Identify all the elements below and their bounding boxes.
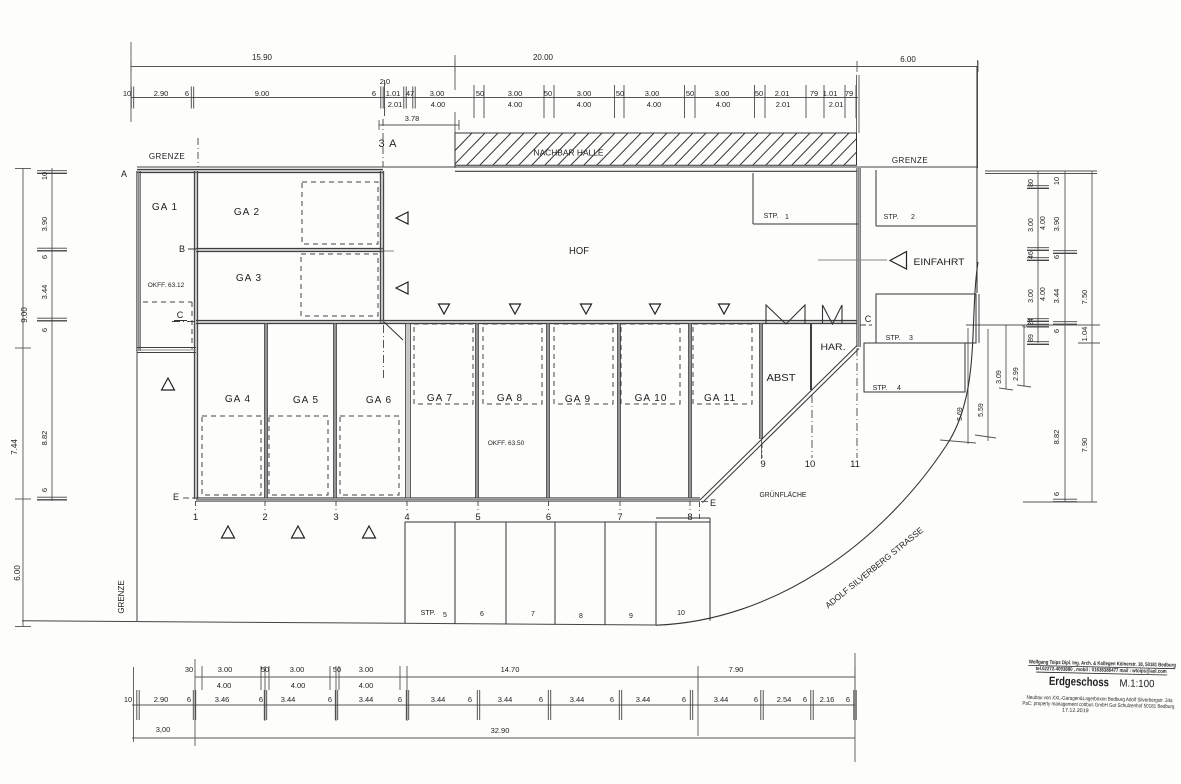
svg-text:10: 10 (40, 172, 49, 180)
svg-text:4.00: 4.00 (431, 100, 446, 109)
svg-text:9: 9 (760, 459, 765, 470)
svg-text:GRÜNFLÄCHE: GRÜNFLÄCHE (760, 490, 807, 499)
svg-text:3.44: 3.44 (1052, 289, 1061, 304)
svg-text:GA 6: GA 6 (366, 395, 392, 406)
svg-text:GA 11: GA 11 (704, 393, 736, 404)
svg-text:2.90: 2.90 (154, 89, 169, 98)
svg-text:79: 79 (810, 89, 818, 98)
svg-text:GA 5: GA 5 (293, 395, 319, 406)
svg-text:4.00: 4.00 (577, 100, 592, 109)
svg-text:3.44: 3.44 (714, 695, 729, 704)
svg-text:47: 47 (406, 89, 414, 98)
svg-text:3.09: 3.09 (996, 370, 1003, 384)
svg-text:3: 3 (333, 512, 338, 523)
svg-text:2.01: 2.01 (829, 100, 844, 109)
svg-text:6: 6 (185, 89, 189, 98)
svg-text:6: 6 (40, 488, 49, 492)
svg-text:50: 50 (616, 89, 624, 98)
svg-text:3.00: 3.00 (508, 89, 523, 98)
svg-text:NACHBAR HALLE: NACHBAR HALLE (534, 148, 604, 157)
svg-text:32.90: 32.90 (491, 726, 510, 735)
svg-text:50: 50 (755, 89, 763, 98)
svg-text:50: 50 (333, 665, 341, 674)
svg-text:10: 10 (124, 695, 132, 704)
svg-text:6: 6 (259, 695, 263, 704)
svg-text:6: 6 (1052, 492, 1061, 496)
svg-text:GA 4: GA 4 (225, 394, 251, 405)
svg-text:6: 6 (1052, 255, 1061, 259)
svg-text:C: C (177, 310, 184, 320)
svg-text:6: 6 (40, 328, 49, 332)
svg-text:6: 6 (328, 695, 332, 704)
svg-text:E: E (710, 498, 716, 508)
svg-text:50: 50 (544, 89, 552, 98)
svg-text:C: C (865, 314, 872, 324)
svg-text:14.70: 14.70 (501, 665, 520, 674)
svg-text:7.50: 7.50 (1080, 290, 1089, 305)
svg-text:6: 6 (610, 695, 614, 704)
svg-text:3.44: 3.44 (498, 695, 513, 704)
svg-text:10: 10 (805, 459, 816, 470)
svg-text:6: 6 (187, 695, 191, 704)
svg-text:3.00: 3.00 (290, 665, 305, 674)
svg-text:M.1:100: M.1:100 (1119, 677, 1154, 690)
svg-text:3 A: 3 A (379, 138, 398, 150)
svg-text:4: 4 (404, 512, 409, 523)
svg-text:Erdgeschoss: Erdgeschoss (1049, 674, 1110, 689)
svg-text:2.90: 2.90 (154, 695, 169, 704)
svg-text:2: 2 (262, 512, 267, 523)
svg-text:6: 6 (480, 611, 484, 618)
svg-text:HOF: HOF (569, 246, 589, 257)
svg-text:79: 79 (845, 89, 853, 98)
svg-text:3.90: 3.90 (40, 217, 49, 232)
svg-text:6: 6 (546, 512, 551, 523)
svg-text:17.12.2019: 17.12.2019 (1062, 708, 1089, 715)
svg-text:6: 6 (682, 695, 686, 704)
svg-text:GRENZE: GRENZE (149, 152, 185, 161)
svg-text:10: 10 (1052, 177, 1061, 185)
svg-text:E: E (173, 492, 179, 502)
svg-text:B: B (179, 244, 185, 254)
svg-text:3.78: 3.78 (405, 114, 420, 123)
svg-text:3.44: 3.44 (40, 285, 49, 300)
svg-text:6: 6 (539, 695, 543, 704)
svg-text:3.00: 3.00 (1028, 289, 1035, 303)
svg-text:4.00: 4.00 (217, 681, 232, 690)
svg-text:6: 6 (398, 695, 402, 704)
svg-text:3.00: 3.00 (359, 665, 374, 674)
svg-text:4.00: 4.00 (291, 681, 306, 690)
svg-text:4: 4 (897, 385, 901, 392)
svg-text:9.00: 9.00 (20, 307, 29, 323)
svg-text:GA 9: GA 9 (565, 394, 591, 405)
svg-text:3: 3 (909, 335, 913, 342)
svg-text:GA 2: GA 2 (234, 207, 260, 218)
svg-text:3.44: 3.44 (570, 695, 585, 704)
svg-text:2.16: 2.16 (820, 695, 835, 704)
svg-text:10: 10 (677, 610, 685, 617)
svg-text:GA 7: GA 7 (427, 393, 453, 404)
svg-text:6: 6 (803, 695, 807, 704)
svg-text:2,0: 2,0 (380, 77, 390, 86)
svg-text:9: 9 (629, 613, 633, 620)
svg-text:7: 7 (531, 611, 535, 618)
svg-text:50: 50 (476, 89, 484, 98)
svg-text:3.46: 3.46 (215, 695, 230, 704)
svg-text:7.90: 7.90 (1080, 438, 1089, 453)
svg-text:50: 50 (686, 89, 694, 98)
svg-text:ABST: ABST (767, 373, 796, 384)
svg-text:6: 6 (1052, 329, 1061, 333)
svg-text:1.01: 1.01 (386, 89, 401, 98)
svg-text:46: 46 (1028, 251, 1035, 259)
svg-text:10: 10 (123, 89, 131, 98)
svg-text:6: 6 (372, 89, 376, 98)
svg-text:3.00: 3.00 (715, 89, 730, 98)
svg-text:3.90: 3.90 (1052, 217, 1061, 232)
svg-text:1: 1 (785, 214, 789, 221)
svg-text:8: 8 (687, 512, 692, 523)
svg-text:4.00: 4.00 (716, 100, 731, 109)
svg-text:1.04: 1.04 (1080, 327, 1089, 342)
svg-text:6: 6 (754, 695, 758, 704)
svg-text:GA 8: GA 8 (497, 393, 523, 404)
svg-text:1: 1 (193, 512, 198, 523)
svg-text:STP.: STP. (884, 214, 899, 221)
svg-text:GRENZE: GRENZE (892, 156, 928, 165)
svg-text:5: 5 (475, 512, 480, 523)
svg-text:GA 10: GA 10 (635, 393, 668, 404)
svg-text:8.82: 8.82 (1052, 430, 1061, 445)
svg-text:4.00: 4.00 (1040, 216, 1047, 230)
svg-text:STP.: STP. (886, 335, 901, 342)
svg-text:6: 6 (468, 695, 472, 704)
svg-text:3.00: 3.00 (218, 665, 233, 674)
svg-text:7: 7 (617, 512, 622, 523)
svg-text:STP.: STP. (421, 610, 436, 617)
svg-text:3,00: 3,00 (156, 725, 171, 734)
svg-text:2.01: 2.01 (776, 100, 791, 109)
svg-text:7.90: 7.90 (729, 665, 744, 674)
svg-text:STP.: STP. (873, 385, 888, 392)
svg-text:A: A (121, 169, 127, 179)
svg-text:5: 5 (443, 612, 447, 619)
svg-text:GRENZE: GRENZE (117, 580, 126, 613)
svg-text:3.00: 3.00 (1028, 218, 1035, 232)
svg-text:1.01: 1.01 (823, 89, 838, 98)
svg-text:89: 89 (1028, 334, 1035, 342)
svg-text:6: 6 (1022, 324, 1029, 328)
svg-text:2.01: 2.01 (775, 89, 790, 98)
svg-text:3.44: 3.44 (431, 695, 446, 704)
svg-text:HAR.: HAR. (821, 342, 846, 353)
svg-text:5.59: 5.59 (978, 403, 985, 417)
svg-text:7.44: 7.44 (10, 439, 19, 455)
svg-text:9.00: 9.00 (255, 89, 270, 98)
svg-text:4.00: 4.00 (359, 681, 374, 690)
svg-text:4.00: 4.00 (647, 100, 662, 109)
svg-text:EINFAHRT: EINFAHRT (914, 257, 965, 268)
svg-text:6: 6 (40, 255, 49, 259)
svg-text:6: 6 (846, 695, 850, 704)
svg-text:4.00: 4.00 (508, 100, 523, 109)
svg-text:11: 11 (850, 459, 860, 470)
svg-text:8.82: 8.82 (40, 431, 49, 446)
svg-text:3.44: 3.44 (281, 695, 296, 704)
svg-text:3.00: 3.00 (645, 89, 660, 98)
svg-text:2.99: 2.99 (1013, 367, 1020, 381)
svg-text:2.54: 2.54 (777, 695, 792, 704)
svg-text:80: 80 (1028, 179, 1035, 187)
svg-text:30: 30 (185, 665, 193, 674)
svg-text:OKFF. 63.12: OKFF. 63.12 (148, 282, 185, 289)
svg-text:20.00: 20.00 (533, 53, 554, 62)
svg-text:3.00: 3.00 (430, 89, 445, 98)
svg-text:3.44: 3.44 (636, 695, 651, 704)
svg-text:GA 3: GA 3 (236, 273, 262, 284)
svg-text:6.00: 6.00 (900, 55, 916, 64)
svg-text:3.00: 3.00 (577, 89, 592, 98)
svg-text:GA 1: GA 1 (152, 202, 178, 213)
svg-text:2: 2 (911, 214, 915, 221)
svg-text:6.00: 6.00 (13, 565, 22, 581)
svg-text:OKFF. 63.50: OKFF. 63.50 (488, 440, 525, 447)
svg-text:8: 8 (579, 613, 583, 620)
svg-text:STP.: STP. (764, 213, 779, 220)
svg-text:2.01: 2.01 (388, 100, 403, 109)
svg-text:3.44: 3.44 (359, 695, 374, 704)
svg-text:15.90: 15.90 (252, 53, 273, 62)
svg-text:4.00: 4.00 (1040, 287, 1047, 301)
